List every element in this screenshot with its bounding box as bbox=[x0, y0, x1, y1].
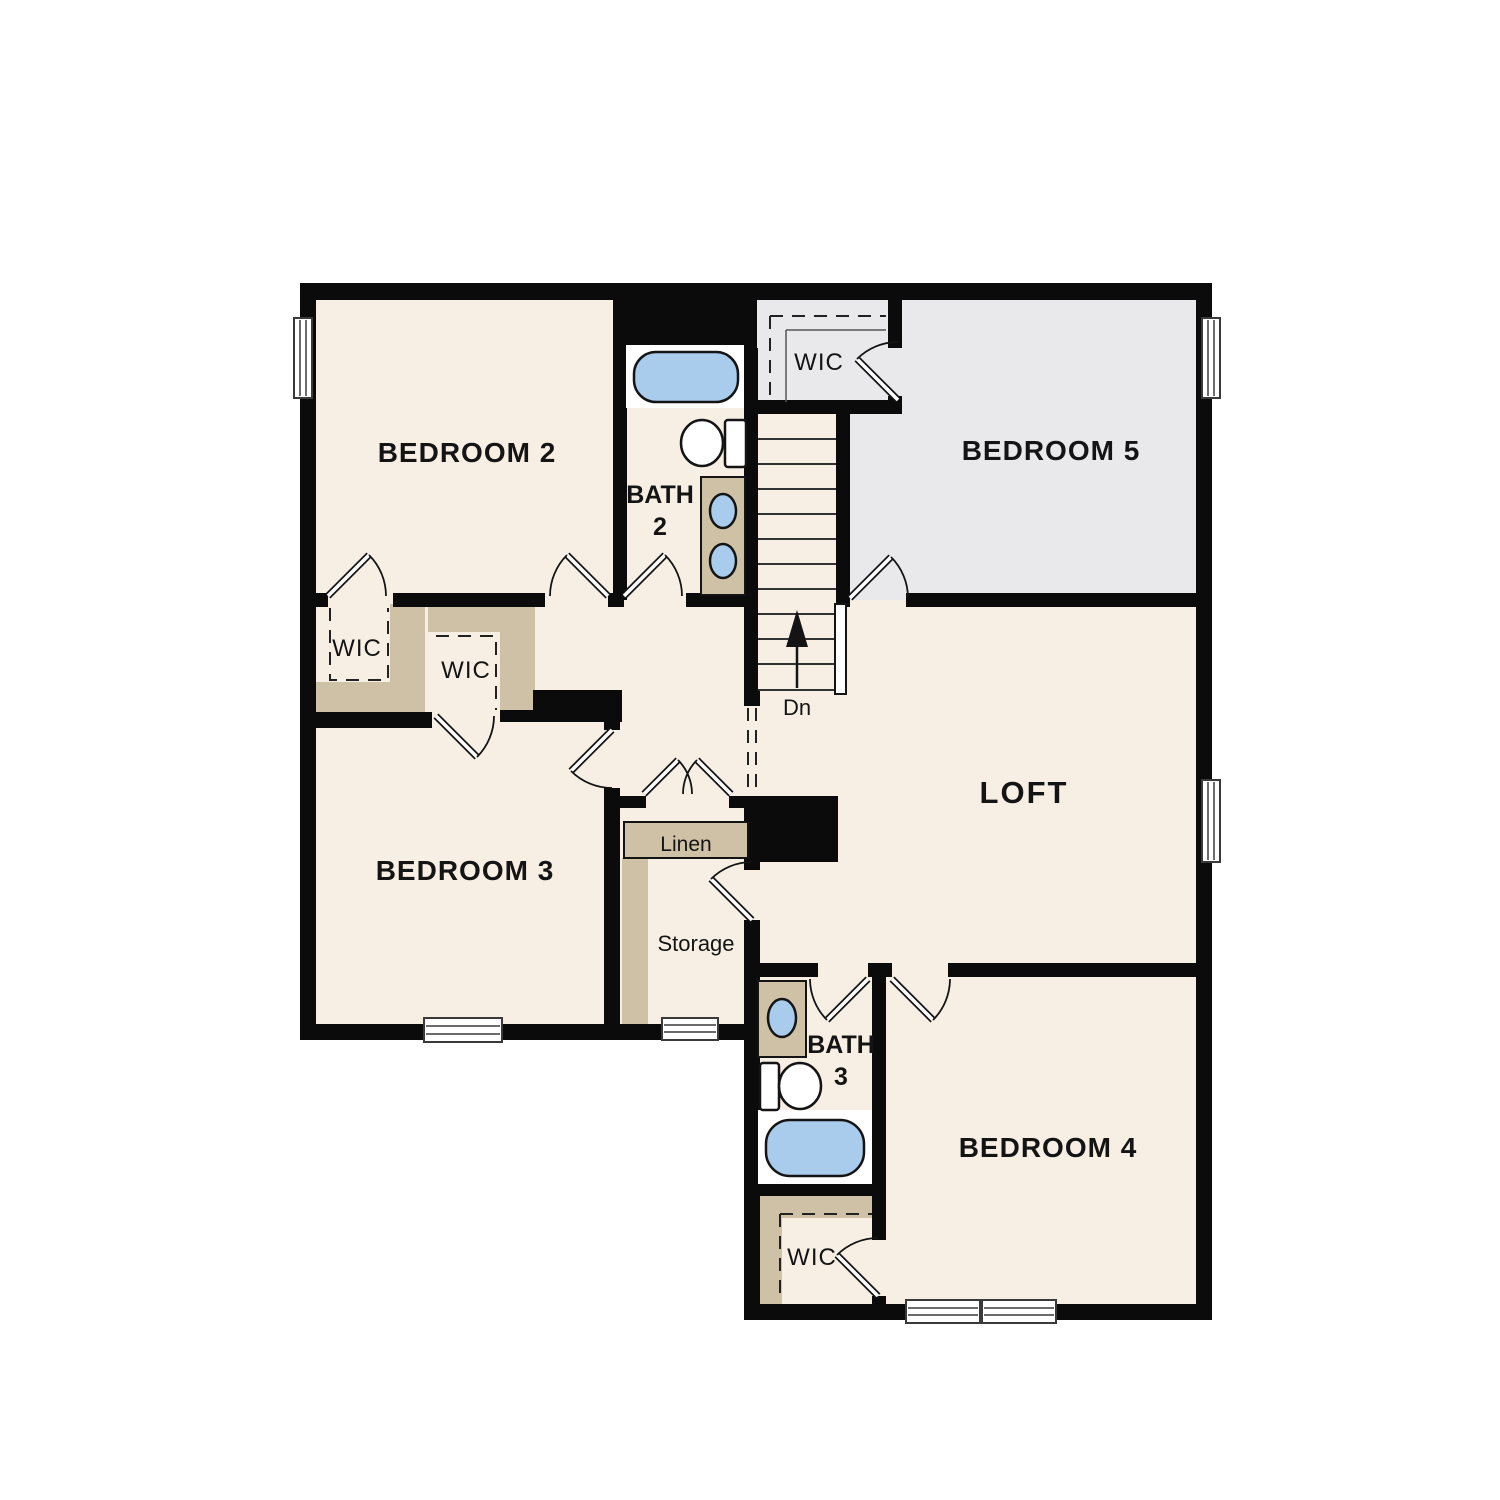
bath2-toilet-bowl bbox=[681, 420, 723, 466]
bedroom2-label: BEDROOM 2 bbox=[378, 437, 557, 468]
loft-label: LOFT bbox=[980, 775, 1069, 810]
bath3-label: BATH bbox=[807, 1031, 875, 1059]
stair-railing bbox=[835, 604, 846, 694]
wic-bedroom3-label: WIC bbox=[441, 657, 491, 684]
bath2-sink-1 bbox=[710, 494, 736, 528]
bath2-number: 2 bbox=[653, 513, 667, 541]
bedroom3-label: BEDROOM 3 bbox=[376, 855, 555, 886]
linen-label: Linen bbox=[660, 833, 711, 856]
bedroom4-label: BEDROOM 4 bbox=[959, 1132, 1138, 1163]
storage-window bbox=[662, 1018, 718, 1040]
wic-bedroom5-label: WIC bbox=[794, 349, 844, 376]
bedroom4-window-2 bbox=[982, 1300, 1056, 1323]
bath2-bathtub bbox=[634, 352, 738, 402]
bedroom5-window bbox=[1202, 318, 1220, 398]
bath3-toilet-tank bbox=[760, 1063, 779, 1110]
bedroom3-window bbox=[424, 1018, 502, 1042]
wic-bedroom2-label: WIC bbox=[332, 635, 382, 662]
bath3-toilet-bowl bbox=[779, 1063, 821, 1109]
bath2-sink-2 bbox=[710, 544, 736, 578]
wic-bedroom4-label: WIC bbox=[787, 1244, 837, 1271]
bedroom5-label: BEDROOM 5 bbox=[962, 435, 1141, 466]
bath3-sink bbox=[768, 999, 796, 1037]
bedroom2-window bbox=[294, 318, 312, 398]
loft-window bbox=[1202, 780, 1220, 862]
storage-label: Storage bbox=[657, 931, 734, 956]
floor-plan-drawing: BEDROOM 2 BEDROOM 5 BEDROOM 3 BEDROOM 4 … bbox=[0, 0, 1500, 1500]
bath3-number: 3 bbox=[834, 1063, 848, 1091]
bedroom4-window-1 bbox=[906, 1300, 980, 1323]
bath3-bathtub bbox=[766, 1120, 864, 1176]
floor-plan-page: BEDROOM 2 BEDROOM 5 BEDROOM 3 BEDROOM 4 … bbox=[0, 0, 1500, 1500]
bath2-label: BATH bbox=[626, 481, 694, 509]
bath2-toilet-tank bbox=[725, 420, 746, 467]
stairs-dn-label: Dn bbox=[783, 695, 811, 720]
